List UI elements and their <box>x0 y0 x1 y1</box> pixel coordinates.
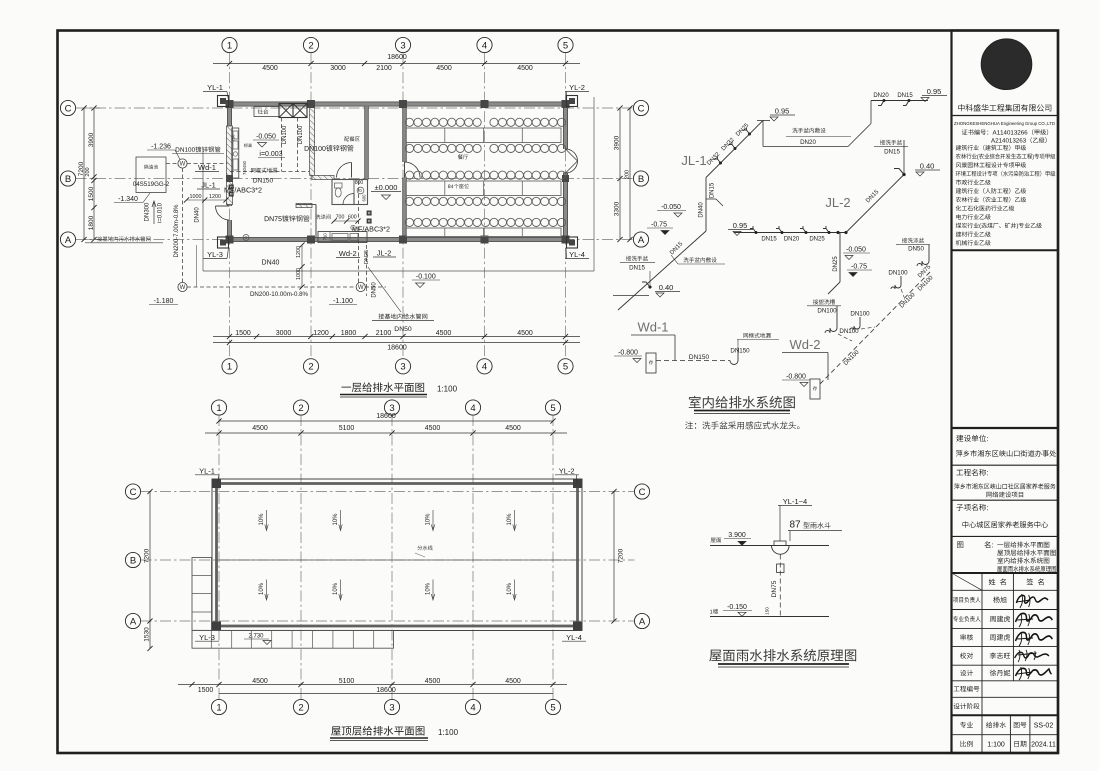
svg-text:2024.11: 2024.11 <box>1031 742 1056 749</box>
svg-text:DN20: DN20 <box>873 93 889 99</box>
svg-text:1:100: 1:100 <box>438 728 459 737</box>
svg-text:JL-2: JL-2 <box>825 195 850 210</box>
svg-text:DN25: DN25 <box>809 237 825 243</box>
svg-text:4500: 4500 <box>252 425 268 432</box>
svg-text:-1.236: -1.236 <box>151 143 171 150</box>
svg-text:JL-1: JL-1 <box>201 181 216 190</box>
svg-text:4500: 4500 <box>425 678 441 685</box>
svg-text:4500: 4500 <box>505 425 521 432</box>
svg-text:200: 200 <box>624 170 630 179</box>
svg-text:10%: 10% <box>259 513 265 526</box>
svg-text:10%: 10% <box>426 582 432 595</box>
svg-text:2: 2 <box>308 362 313 373</box>
svg-text:-0.150: -0.150 <box>727 604 747 611</box>
svg-text:150: 150 <box>765 607 770 615</box>
svg-text:W: W <box>180 285 186 291</box>
svg-text:DN15: DN15 <box>629 265 645 272</box>
svg-text:-0.800: -0.800 <box>786 373 806 380</box>
svg-text:4500: 4500 <box>517 330 533 337</box>
svg-text:JL-2: JL-2 <box>377 249 392 258</box>
svg-text:1: 1 <box>216 403 221 414</box>
svg-text:DN15: DN15 <box>897 93 913 99</box>
svg-text:DN150: DN150 <box>689 354 710 361</box>
svg-text:C: C <box>65 103 72 114</box>
svg-text:4500: 4500 <box>425 425 441 432</box>
svg-text:4500: 4500 <box>436 330 452 337</box>
svg-text:1530: 1530 <box>143 627 150 642</box>
svg-text:200: 200 <box>85 167 91 176</box>
svg-text:Wd-2: Wd-2 <box>339 249 357 258</box>
svg-text:-0.75: -0.75 <box>851 263 867 270</box>
svg-text:-0.75: -0.75 <box>651 221 667 228</box>
svg-text:3000: 3000 <box>330 65 346 72</box>
svg-text:1000: 1000 <box>190 194 202 200</box>
svg-text:600: 600 <box>362 194 367 202</box>
svg-text:0.95: 0.95 <box>775 107 790 116</box>
svg-text:±0.000: ±0.000 <box>375 183 398 192</box>
svg-text:4500: 4500 <box>436 65 452 72</box>
svg-text:DN15: DN15 <box>761 237 777 243</box>
svg-text:DN150: DN150 <box>253 177 274 184</box>
svg-text:DN100: DN100 <box>282 125 288 144</box>
svg-text:4500: 4500 <box>517 65 533 72</box>
svg-text:18600: 18600 <box>387 54 407 61</box>
svg-text:800: 800 <box>355 180 364 186</box>
svg-text:10%: 10% <box>426 513 432 526</box>
svg-text:10%: 10% <box>507 582 513 595</box>
svg-text:3900: 3900 <box>88 132 95 147</box>
svg-text:DN200-10.00m-0.8%: DN200-10.00m-0.8% <box>250 291 309 298</box>
svg-text:18600: 18600 <box>387 344 407 351</box>
svg-text:A: A <box>130 616 137 627</box>
svg-text:DN15: DN15 <box>710 182 716 198</box>
svg-text:Wd-1: Wd-1 <box>637 320 668 335</box>
svg-text:18600: 18600 <box>376 413 396 420</box>
svg-text:ZHONGKESHENGHUA Engineering Gr: ZHONGKESHENGHUA Engineering Group CO.,LT… <box>954 121 1056 126</box>
svg-text:A: A <box>638 235 645 246</box>
svg-text:DN200-7.00m-0.8%: DN200-7.00m-0.8% <box>174 204 180 258</box>
svg-text:04S519GG-2: 04S519GG-2 <box>133 181 170 188</box>
svg-text:4: 4 <box>470 403 475 414</box>
svg-text:YL-1~4: YL-1~4 <box>783 497 807 506</box>
svg-text:A: A <box>639 616 646 627</box>
svg-text:5100: 5100 <box>339 425 355 432</box>
svg-text:DN50: DN50 <box>908 246 924 253</box>
svg-text:3900: 3900 <box>613 135 620 150</box>
svg-text:10%: 10% <box>259 582 265 595</box>
svg-text:-0.050: -0.050 <box>256 134 276 141</box>
svg-text:YL-1: YL-1 <box>199 466 215 475</box>
svg-text:18600: 18600 <box>376 687 396 694</box>
svg-text:YL-3: YL-3 <box>207 250 223 259</box>
svg-text:W: W <box>358 285 364 291</box>
svg-text:DN40: DN40 <box>195 207 201 223</box>
svg-text:MF/ABC3*2: MF/ABC3*2 <box>352 225 390 234</box>
svg-text:C: C <box>638 103 645 114</box>
svg-text:600: 600 <box>348 215 357 221</box>
svg-text:2: 2 <box>308 40 313 51</box>
svg-text:4: 4 <box>482 40 487 51</box>
svg-text:3.900: 3.900 <box>728 532 746 539</box>
svg-text:1200: 1200 <box>296 246 302 258</box>
svg-text:2: 2 <box>298 702 303 713</box>
svg-text:3: 3 <box>400 40 405 51</box>
svg-text:5: 5 <box>563 40 568 51</box>
svg-text:4: 4 <box>470 702 475 713</box>
svg-text:1500: 1500 <box>198 687 214 694</box>
svg-text:DN25: DN25 <box>833 256 839 272</box>
svg-text:2100: 2100 <box>376 330 392 337</box>
svg-text:87: 87 <box>789 520 801 531</box>
svg-text:-1.340: -1.340 <box>118 196 138 203</box>
svg-text:1800: 1800 <box>88 215 95 230</box>
svg-text:-0.100: -0.100 <box>416 273 436 280</box>
svg-text:1: 1 <box>227 40 232 51</box>
svg-text:DN40: DN40 <box>262 259 280 266</box>
svg-text:DN20: DN20 <box>784 237 800 243</box>
svg-text:1200: 1200 <box>313 330 329 337</box>
svg-text:2100: 2100 <box>376 65 392 72</box>
svg-text:750: 750 <box>231 134 236 142</box>
svg-text:1:100: 1:100 <box>987 742 1005 749</box>
svg-text:3: 3 <box>389 702 394 713</box>
svg-text:DN15: DN15 <box>884 149 900 156</box>
svg-text:-0.050: -0.050 <box>846 246 866 253</box>
svg-text:3000: 3000 <box>276 330 292 337</box>
svg-text:JL-1: JL-1 <box>681 153 706 168</box>
svg-text:2: 2 <box>298 403 303 414</box>
svg-text:DN75: DN75 <box>771 580 778 597</box>
svg-text:4500: 4500 <box>262 65 278 72</box>
svg-text:0.40: 0.40 <box>659 283 674 292</box>
svg-text:3: 3 <box>389 403 394 414</box>
svg-text:C: C <box>639 487 646 498</box>
svg-text:C: C <box>130 487 137 498</box>
svg-text:DN25: DN25 <box>364 250 370 264</box>
svg-text:1: 1 <box>227 362 232 373</box>
svg-text:1: 1 <box>216 702 221 713</box>
svg-text:1000: 1000 <box>296 268 302 280</box>
svg-text:Wd-2: Wd-2 <box>789 337 820 352</box>
svg-text:DN100: DN100 <box>817 308 837 315</box>
svg-text:5: 5 <box>563 362 568 373</box>
svg-text:10%: 10% <box>333 513 339 526</box>
svg-text:DN100: DN100 <box>298 125 304 144</box>
svg-text:7200: 7200 <box>617 548 624 563</box>
svg-text:710: 710 <box>323 233 328 241</box>
svg-text:4500: 4500 <box>252 678 268 685</box>
svg-text:4500: 4500 <box>505 678 521 685</box>
svg-text:YL-2: YL-2 <box>559 466 575 475</box>
svg-text:YL-4: YL-4 <box>569 250 585 259</box>
svg-text:B: B <box>65 174 71 185</box>
svg-text:3: 3 <box>400 362 405 373</box>
svg-text:-1.100: -1.100 <box>333 298 353 305</box>
svg-text:2.730: 2.730 <box>248 634 264 640</box>
svg-text:1500: 1500 <box>235 330 251 337</box>
svg-text:YL-1: YL-1 <box>207 83 223 92</box>
svg-text:-0.050: -0.050 <box>661 204 681 211</box>
svg-text:W: W <box>180 162 186 168</box>
svg-text:B: B <box>638 174 644 185</box>
svg-text:0.95: 0.95 <box>927 87 942 96</box>
svg-text:i=0.010: i=0.010 <box>158 202 164 223</box>
svg-text:A: A <box>65 235 72 246</box>
svg-text:MF/ABC3*2: MF/ABC3*2 <box>224 185 262 194</box>
svg-text:5: 5 <box>550 403 555 414</box>
svg-text:700: 700 <box>336 215 345 221</box>
svg-text:740450: 740450 <box>242 160 247 175</box>
svg-text:7200: 7200 <box>143 548 150 563</box>
svg-text:DN150: DN150 <box>730 348 750 355</box>
svg-text:4: 4 <box>482 362 487 373</box>
svg-text:1500: 1500 <box>88 186 95 201</box>
svg-text:1800: 1800 <box>341 330 357 337</box>
svg-text:YL-2: YL-2 <box>569 83 585 92</box>
svg-text:1:100: 1:100 <box>437 384 458 393</box>
svg-text:DN20: DN20 <box>800 139 816 146</box>
svg-text:1200: 1200 <box>209 194 221 200</box>
svg-text:DN50: DN50 <box>394 326 412 333</box>
svg-text:DN100: DN100 <box>888 270 908 277</box>
svg-text:-0.800: -0.800 <box>618 349 638 356</box>
svg-text:YL-4: YL-4 <box>566 633 582 642</box>
svg-text:5: 5 <box>550 702 555 713</box>
svg-text:DN50: DN50 <box>372 282 378 298</box>
svg-text:10%: 10% <box>507 513 513 526</box>
svg-text:0.95: 0.95 <box>733 221 748 230</box>
svg-text:B: B <box>130 555 136 566</box>
svg-text:5100: 5100 <box>339 678 355 685</box>
svg-text:DN40: DN40 <box>699 202 705 218</box>
svg-text:0.40: 0.40 <box>920 162 935 171</box>
svg-text:3300: 3300 <box>613 201 620 216</box>
svg-text:10%: 10% <box>333 582 339 595</box>
svg-text:DN100: DN100 <box>850 311 870 318</box>
svg-text:i=0.003: i=0.003 <box>259 151 282 158</box>
svg-text:YL-3: YL-3 <box>199 633 215 642</box>
svg-text:-1.180: -1.180 <box>154 298 174 305</box>
svg-text:SS-02: SS-02 <box>1034 723 1054 730</box>
svg-text:DN300: DN300 <box>145 202 151 221</box>
svg-text:7200: 7200 <box>78 161 85 176</box>
svg-text:Wd-1: Wd-1 <box>198 163 216 172</box>
